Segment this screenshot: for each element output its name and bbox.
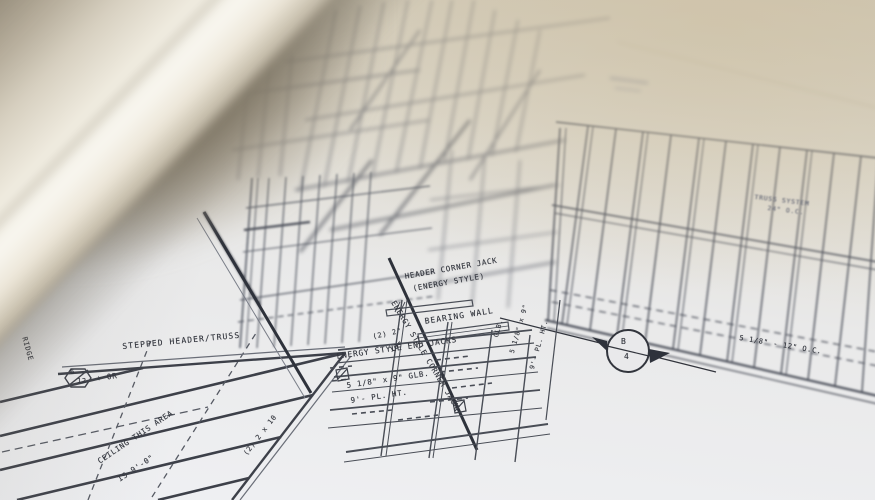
label-glb-vertical: GLB. bbox=[492, 318, 505, 338]
label-ceiling-note-2: IS 9'-0" bbox=[116, 453, 156, 484]
label-section-bottom: 4 bbox=[624, 352, 630, 361]
label-plate-height: 9'- PL. HT. bbox=[350, 388, 408, 405]
label-plate-height-vertical: 9'- PL. HT. bbox=[528, 319, 550, 370]
label-bearing-wall: BEARING WALL bbox=[424, 306, 494, 326]
label-glb-vertical-size: 5 1/8" x 9" bbox=[508, 303, 530, 354]
blueprint-photo: HEADER CORNER JACK (ENERGY STYLE) BEARIN… bbox=[0, 0, 875, 500]
label-section-top: B bbox=[621, 337, 627, 346]
label-spacing-dim: 5 1/8" - 12" O.C. bbox=[739, 334, 823, 356]
label-beam-2x10: (2) 2 x 10 bbox=[242, 413, 279, 457]
label-dim-2-2: (2) 2" bbox=[372, 327, 403, 341]
label-ceiling-note-1: CEILING THIS AREA bbox=[96, 408, 175, 465]
label-glb-beam: 5 1/8" x 9" GLB. bbox=[346, 369, 430, 390]
label-stepped-header-truss: STEPPED HEADER/TRUSS bbox=[122, 331, 241, 351]
label-pitch-run: 12 bbox=[77, 377, 87, 385]
label-pitch-or: + OR bbox=[96, 371, 118, 383]
